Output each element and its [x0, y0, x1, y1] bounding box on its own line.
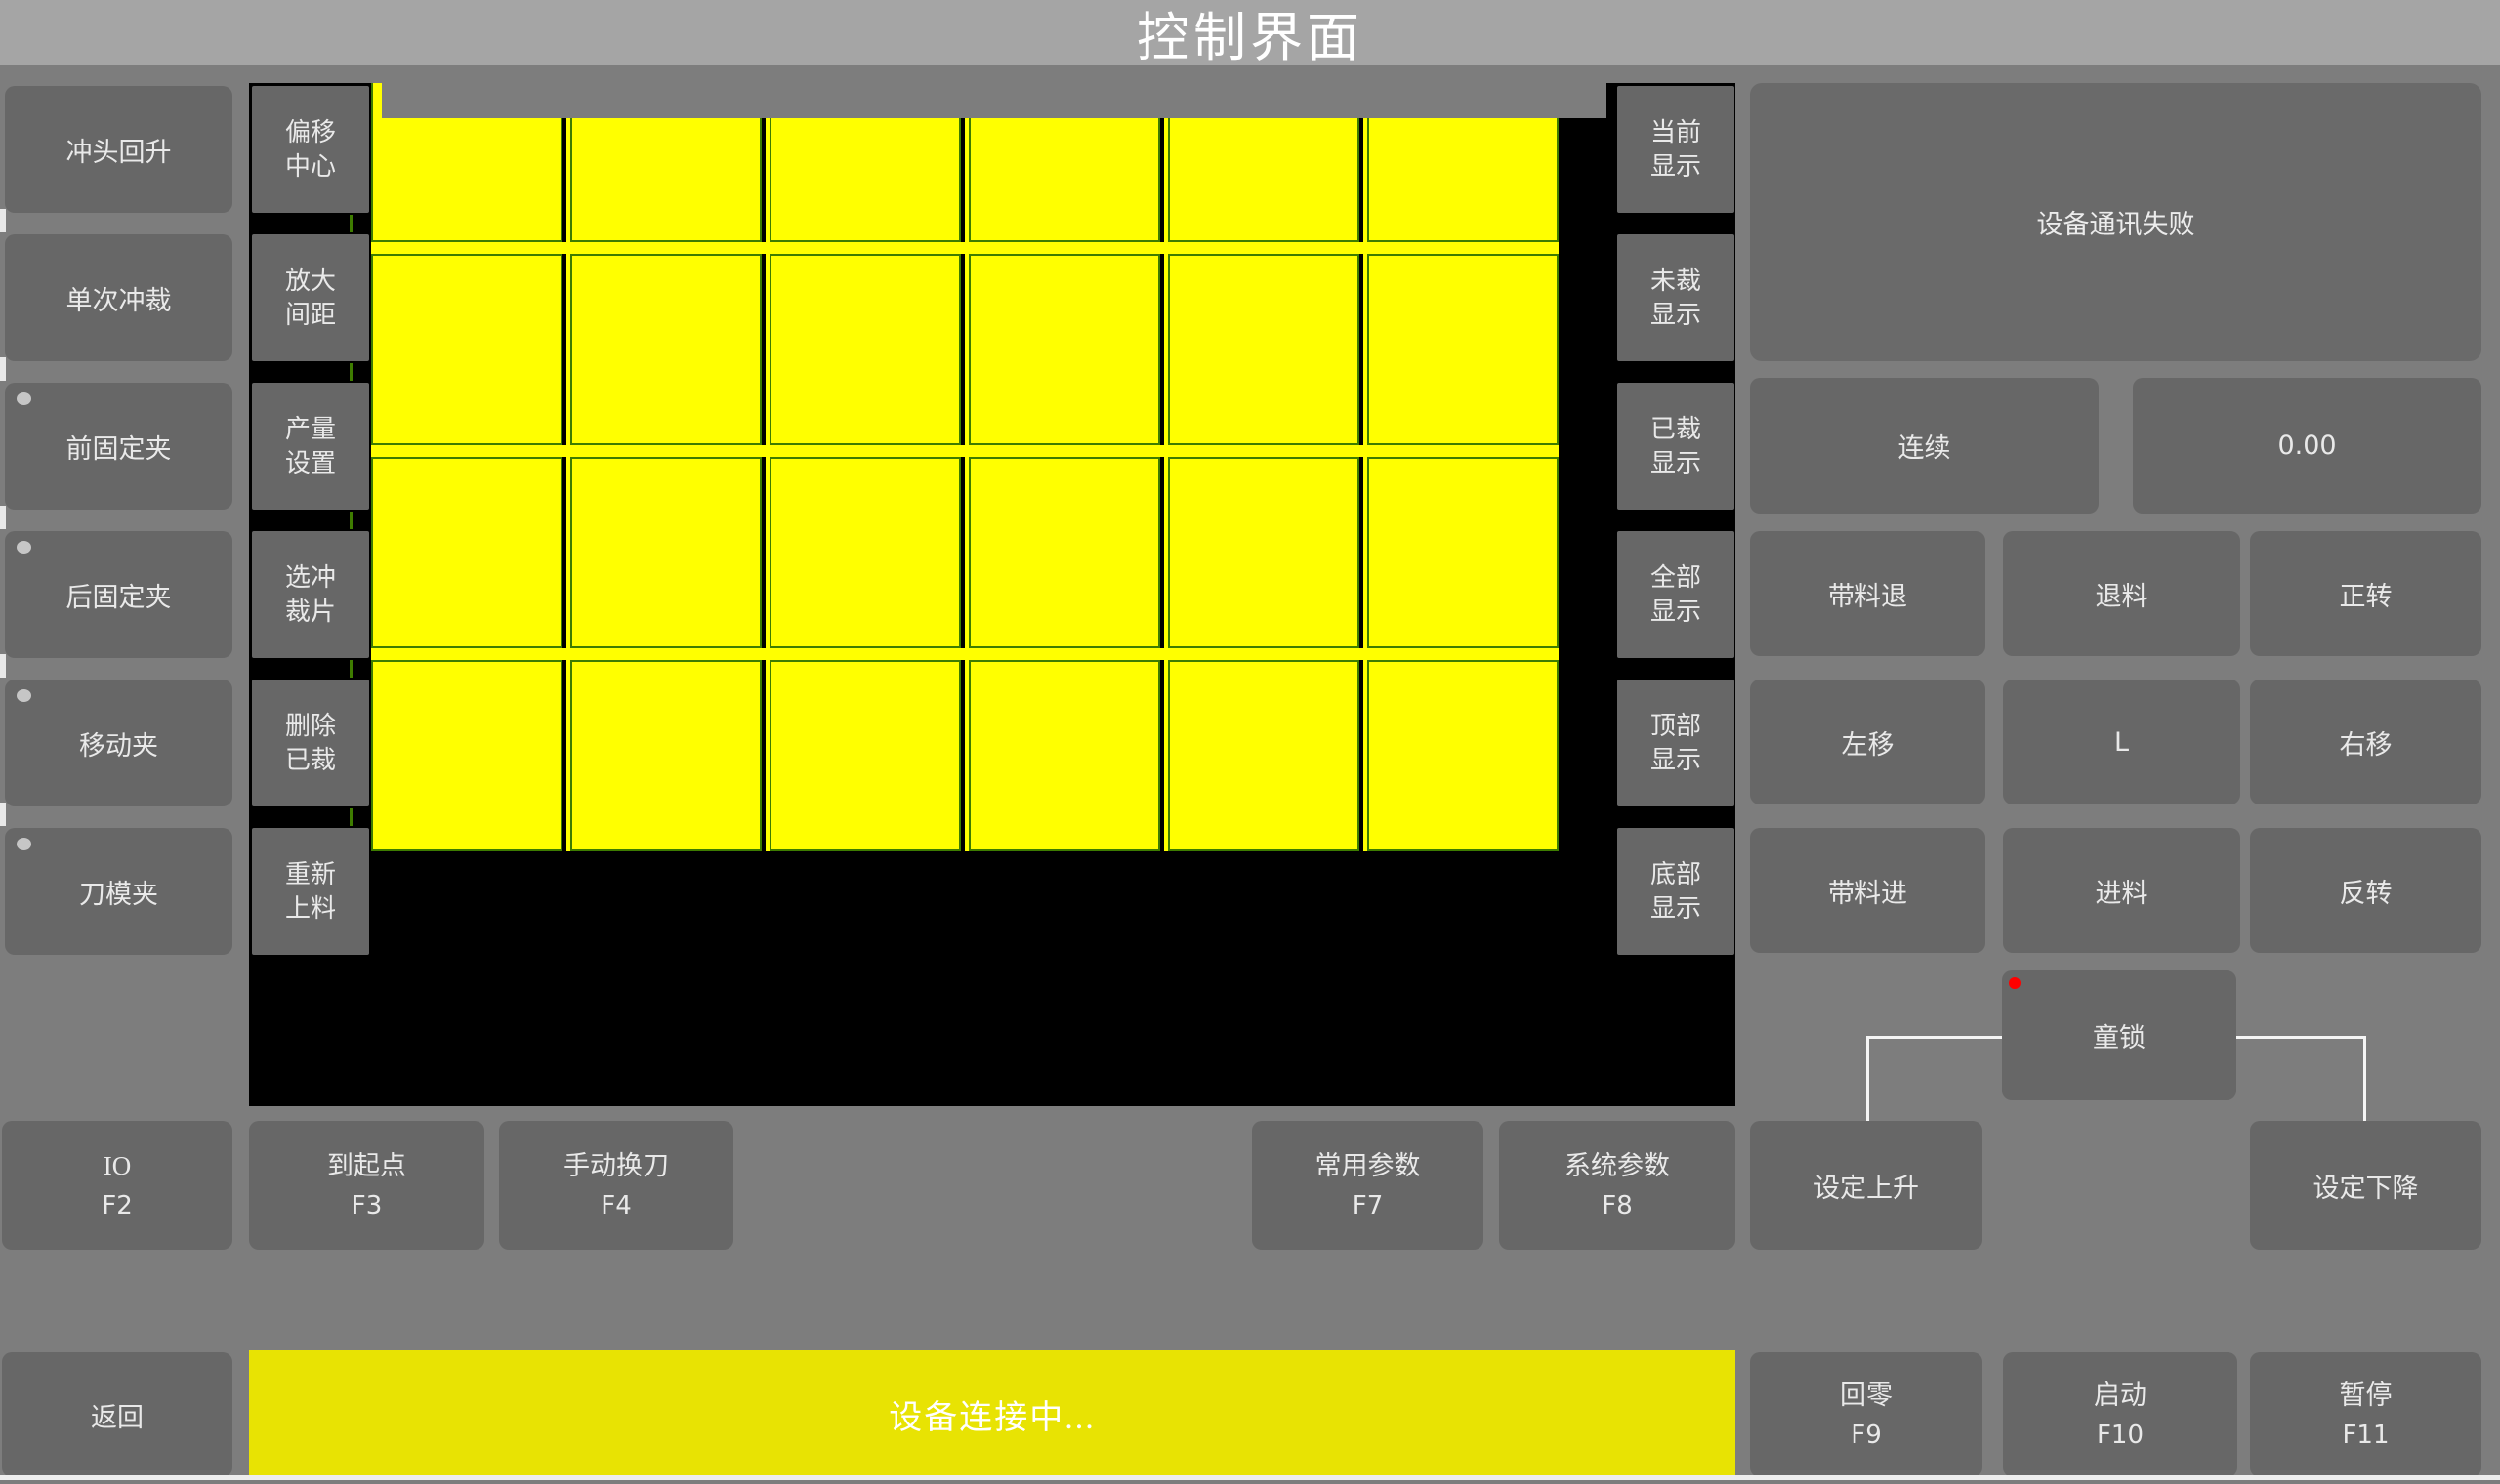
cut-piece[interactable] [1367, 660, 1559, 851]
display-top-button[interactable]: 顶部 显示 [1617, 680, 1734, 806]
button-label: 常用参数 [1315, 1150, 1421, 1181]
display-cut-button[interactable]: 已裁 显示 [1617, 383, 1734, 510]
button-label: 移动夹 [79, 724, 158, 763]
manual-tool-change-f4-button[interactable]: 手动换刀 F4 [499, 1121, 733, 1250]
cut-piece[interactable] [570, 254, 762, 445]
sheet-edge-sliver [350, 808, 368, 826]
button-label: 前固定夹 [66, 428, 172, 466]
connector-line [1866, 1036, 2002, 1039]
control-screen: 控制界面 冲头回升 单次冲裁 前固定夹 后固定夹 移动夹 刀模夹 偏移 中心 放… [0, 0, 2500, 1484]
button-label: 重新 上料 [285, 857, 336, 926]
button-label: 设定下降 [2313, 1167, 2419, 1205]
fkey-label: F10 [2097, 1421, 2144, 1450]
button-label: 进料 [2096, 872, 2148, 910]
fkey-label: F4 [601, 1191, 632, 1220]
jog-feed-button[interactable]: 进料 [2003, 828, 2240, 953]
cut-piece[interactable] [570, 660, 762, 851]
jog-move-right-button[interactable]: 右移 [2250, 680, 2481, 804]
jog-strip-feed-button[interactable]: 带料进 [1750, 828, 1985, 953]
button-label: 冲头回升 [66, 131, 172, 169]
sheet-top-mask [382, 83, 1606, 118]
title-bar: 控制界面 [0, 0, 2500, 65]
connector-line [1866, 1036, 1869, 1123]
button-label: 返回 [91, 1396, 144, 1434]
left-nav-front-clamp-button[interactable]: 前固定夹 [5, 383, 232, 510]
button-label: 带料退 [1828, 575, 1907, 613]
device-message-box: 设备通讯失败 [1750, 83, 2481, 361]
button-label: 正转 [2340, 575, 2393, 613]
cut-piece[interactable] [770, 457, 961, 648]
button-label: 已裁 显示 [1650, 412, 1701, 480]
cut-piece[interactable] [1168, 254, 1359, 445]
home-f9-button[interactable]: 回零 F9 [1750, 1352, 1982, 1477]
pieces-layer [371, 83, 1559, 851]
tool-delete-cut-button[interactable]: 删除 已裁 [252, 680, 369, 806]
cut-piece[interactable] [770, 660, 961, 851]
fkey-label: F8 [1602, 1191, 1633, 1220]
jog-strip-back-button[interactable]: 带料退 [1750, 531, 1985, 656]
cut-piece[interactable] [570, 457, 762, 648]
button-label: 系统参数 [1564, 1150, 1670, 1181]
mode-continuous-button[interactable]: 连续 [1750, 378, 2099, 514]
sheet-edge-sliver [350, 660, 368, 678]
button-label: 后固定夹 [66, 576, 172, 614]
left-nav-die-clamp-button[interactable]: 刀模夹 [5, 828, 232, 955]
display-uncut-button[interactable]: 未裁 显示 [1617, 234, 1734, 361]
left-nav-single-punch-button[interactable]: 单次冲裁 [5, 234, 232, 361]
button-label: 刀模夹 [79, 873, 158, 911]
connector-line [2363, 1036, 2366, 1123]
jog-forward-rotate-button[interactable]: 正转 [2250, 531, 2481, 656]
left-nav-punch-up-button[interactable]: 冲头回升 [5, 86, 232, 213]
status-dot [17, 689, 31, 702]
button-label: 产量 设置 [285, 412, 336, 480]
back-button[interactable]: 返回 [2, 1352, 232, 1477]
button-label: 设定上升 [1813, 1167, 1919, 1205]
jog-l-button[interactable]: L [2003, 680, 2240, 804]
connector-line [2236, 1036, 2366, 1039]
button-label: 放大 间距 [285, 264, 336, 332]
tool-zoom-gap-button[interactable]: 放大 间距 [252, 234, 369, 361]
start-f10-button[interactable]: 启动 F10 [2003, 1352, 2237, 1477]
system-params-f8-button[interactable]: 系统参数 F8 [1499, 1121, 1735, 1250]
button-label: 到起点 [327, 1150, 406, 1181]
common-params-f7-button[interactable]: 常用参数 F7 [1252, 1121, 1483, 1250]
button-label: 删除 已裁 [285, 709, 336, 777]
cut-piece[interactable] [371, 660, 562, 851]
device-message: 设备通讯失败 [2037, 203, 2195, 241]
value-display: 0.00 [2133, 378, 2481, 514]
cut-piece[interactable] [1168, 457, 1359, 648]
status-dot [17, 541, 31, 554]
cut-piece[interactable] [371, 254, 562, 445]
edge-tick [0, 357, 6, 381]
tool-output-setting-button[interactable]: 产量 设置 [252, 383, 369, 510]
button-label: 选冲 裁片 [285, 560, 336, 629]
button-label: 童锁 [2093, 1016, 2146, 1054]
cut-piece[interactable] [371, 457, 562, 648]
cut-piece[interactable] [1367, 254, 1559, 445]
button-label: 手动换刀 [563, 1150, 669, 1181]
button-label: 暂停 [2340, 1380, 2393, 1411]
bottom-edge-line [0, 1475, 2500, 1480]
cut-piece[interactable] [969, 254, 1160, 445]
display-bottom-button[interactable]: 底部 显示 [1617, 828, 1734, 955]
status-message: 设备连接中... [889, 1390, 1096, 1438]
pause-f11-button[interactable]: 暂停 F11 [2250, 1352, 2481, 1477]
button-label: 底部 显示 [1650, 857, 1701, 926]
io-f2-button[interactable]: IO F2 [2, 1121, 232, 1250]
display-all-button[interactable]: 全部 显示 [1617, 531, 1734, 658]
fkey-label: F2 [102, 1191, 133, 1220]
left-nav-rear-clamp-button[interactable]: 后固定夹 [5, 531, 232, 658]
edge-tick [0, 803, 6, 826]
button-label: 偏移 中心 [285, 115, 336, 184]
sheet-edge-sliver [350, 512, 368, 529]
edge-tick [0, 506, 6, 529]
status-dot [17, 392, 31, 405]
fkey-label: F9 [1851, 1421, 1882, 1450]
cut-piece[interactable] [1168, 660, 1359, 851]
button-label: 退料 [2096, 575, 2148, 613]
fkey-label: F11 [2342, 1421, 2389, 1450]
button-label: 未裁 显示 [1650, 264, 1701, 332]
jog-move-left-button[interactable]: 左移 [1750, 680, 1985, 804]
cutting-preview-canvas: 偏移 中心 放大 间距 产量 设置 选冲 裁片 删除 已裁 重新 上料 当前 显… [249, 83, 1735, 1106]
button-label: 反转 [2340, 872, 2393, 910]
button-label: 当前 显示 [1650, 115, 1701, 184]
cut-piece[interactable] [770, 254, 961, 445]
status-dot [17, 838, 31, 850]
fkey-label: F7 [1353, 1191, 1384, 1220]
button-label: 左移 [1842, 723, 1895, 762]
button-label: 回零 [1840, 1380, 1893, 1411]
jog-unload-button[interactable]: 退料 [2003, 531, 2240, 656]
tool-offset-center-button[interactable]: 偏移 中心 [252, 86, 369, 213]
jog-reverse-rotate-button[interactable]: 反转 [2250, 828, 2481, 953]
fkey-label: F3 [352, 1191, 383, 1220]
to-origin-f3-button[interactable]: 到起点 F3 [249, 1121, 484, 1250]
button-label: L [2114, 727, 2129, 758]
button-label: 启动 [2094, 1380, 2146, 1411]
button-label: 右移 [2340, 723, 2393, 762]
child-lock-button[interactable]: 童锁 [2002, 970, 2236, 1100]
sheet-edge-sliver [350, 215, 368, 232]
sheet-edge-sliver [350, 363, 368, 381]
cut-piece[interactable] [969, 457, 1160, 648]
display-current-button[interactable]: 当前 显示 [1617, 86, 1734, 213]
left-nav-move-clamp-button[interactable]: 移动夹 [5, 680, 232, 806]
set-lower-button[interactable]: 设定下降 [2250, 1121, 2481, 1250]
edge-tick [0, 654, 6, 678]
button-label: 单次冲裁 [66, 279, 172, 317]
button-label: 全部 显示 [1650, 560, 1701, 629]
edge-tick [0, 209, 6, 232]
alert-dot [2009, 977, 2021, 989]
cut-piece[interactable] [1367, 457, 1559, 648]
tool-reload-material-button[interactable]: 重新 上料 [252, 828, 369, 955]
button-label: 顶部 显示 [1650, 709, 1701, 777]
button-label: 带料进 [1828, 872, 1907, 910]
cut-piece[interactable] [969, 660, 1160, 851]
button-label: IO [104, 1150, 132, 1181]
value-text: 0.00 [2277, 431, 2336, 461]
page-title: 控制界面 [1137, 0, 1363, 71]
status-bar: 设备连接中... [249, 1350, 1735, 1477]
tool-select-piece-button[interactable]: 选冲 裁片 [252, 531, 369, 658]
button-label: 连续 [1898, 427, 1951, 465]
set-rise-button[interactable]: 设定上升 [1750, 1121, 1982, 1250]
